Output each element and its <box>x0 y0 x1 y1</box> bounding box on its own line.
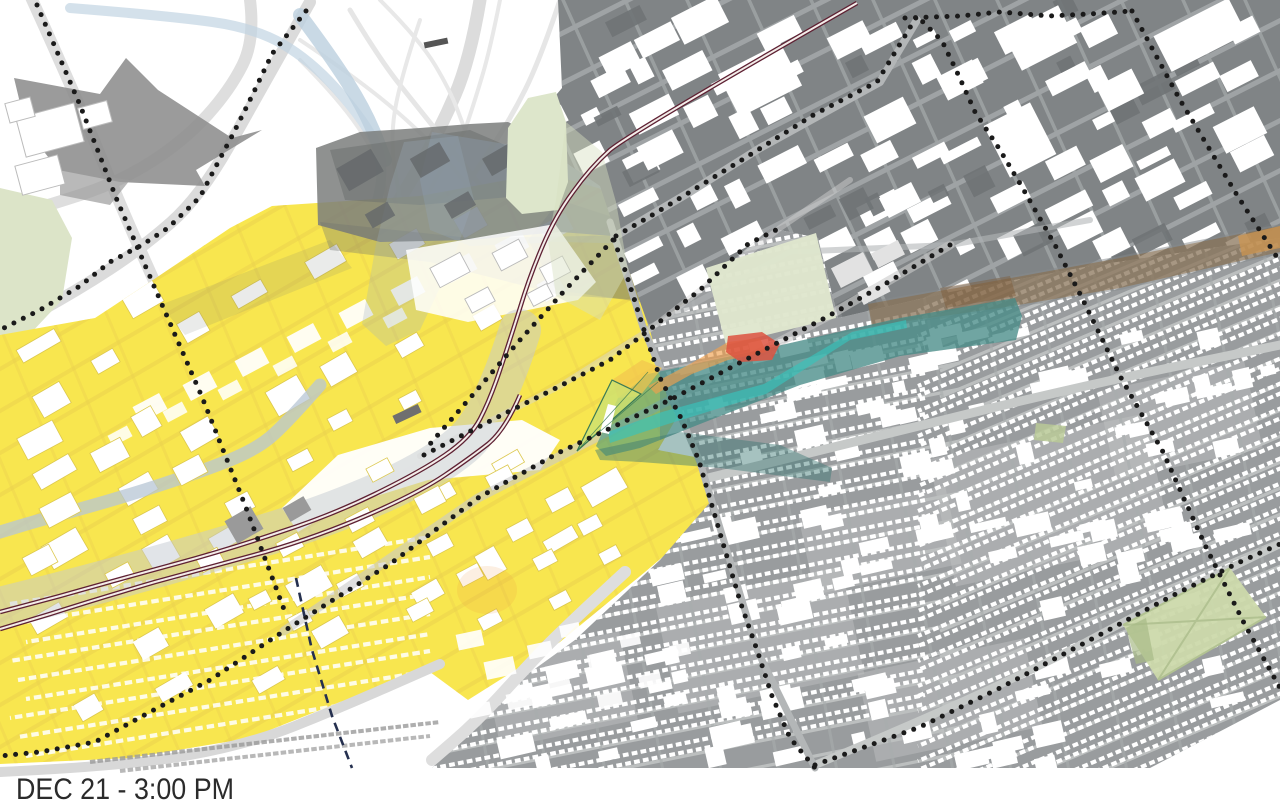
svg-text:DEC 21 - 3:00 PM: DEC 21 - 3:00 PM <box>16 773 234 806</box>
